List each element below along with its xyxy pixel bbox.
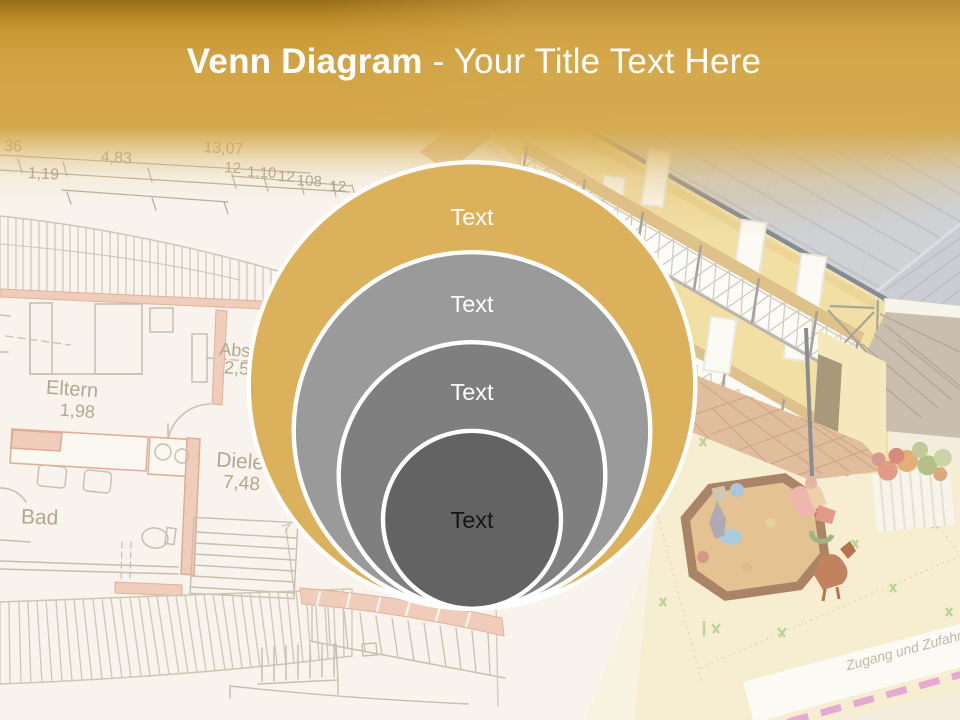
svg-text:Text: Text bbox=[450, 291, 494, 317]
svg-text:Text: Text bbox=[450, 204, 494, 230]
svg-text:Text: Text bbox=[450, 507, 494, 533]
svg-text:Text: Text bbox=[450, 379, 494, 405]
